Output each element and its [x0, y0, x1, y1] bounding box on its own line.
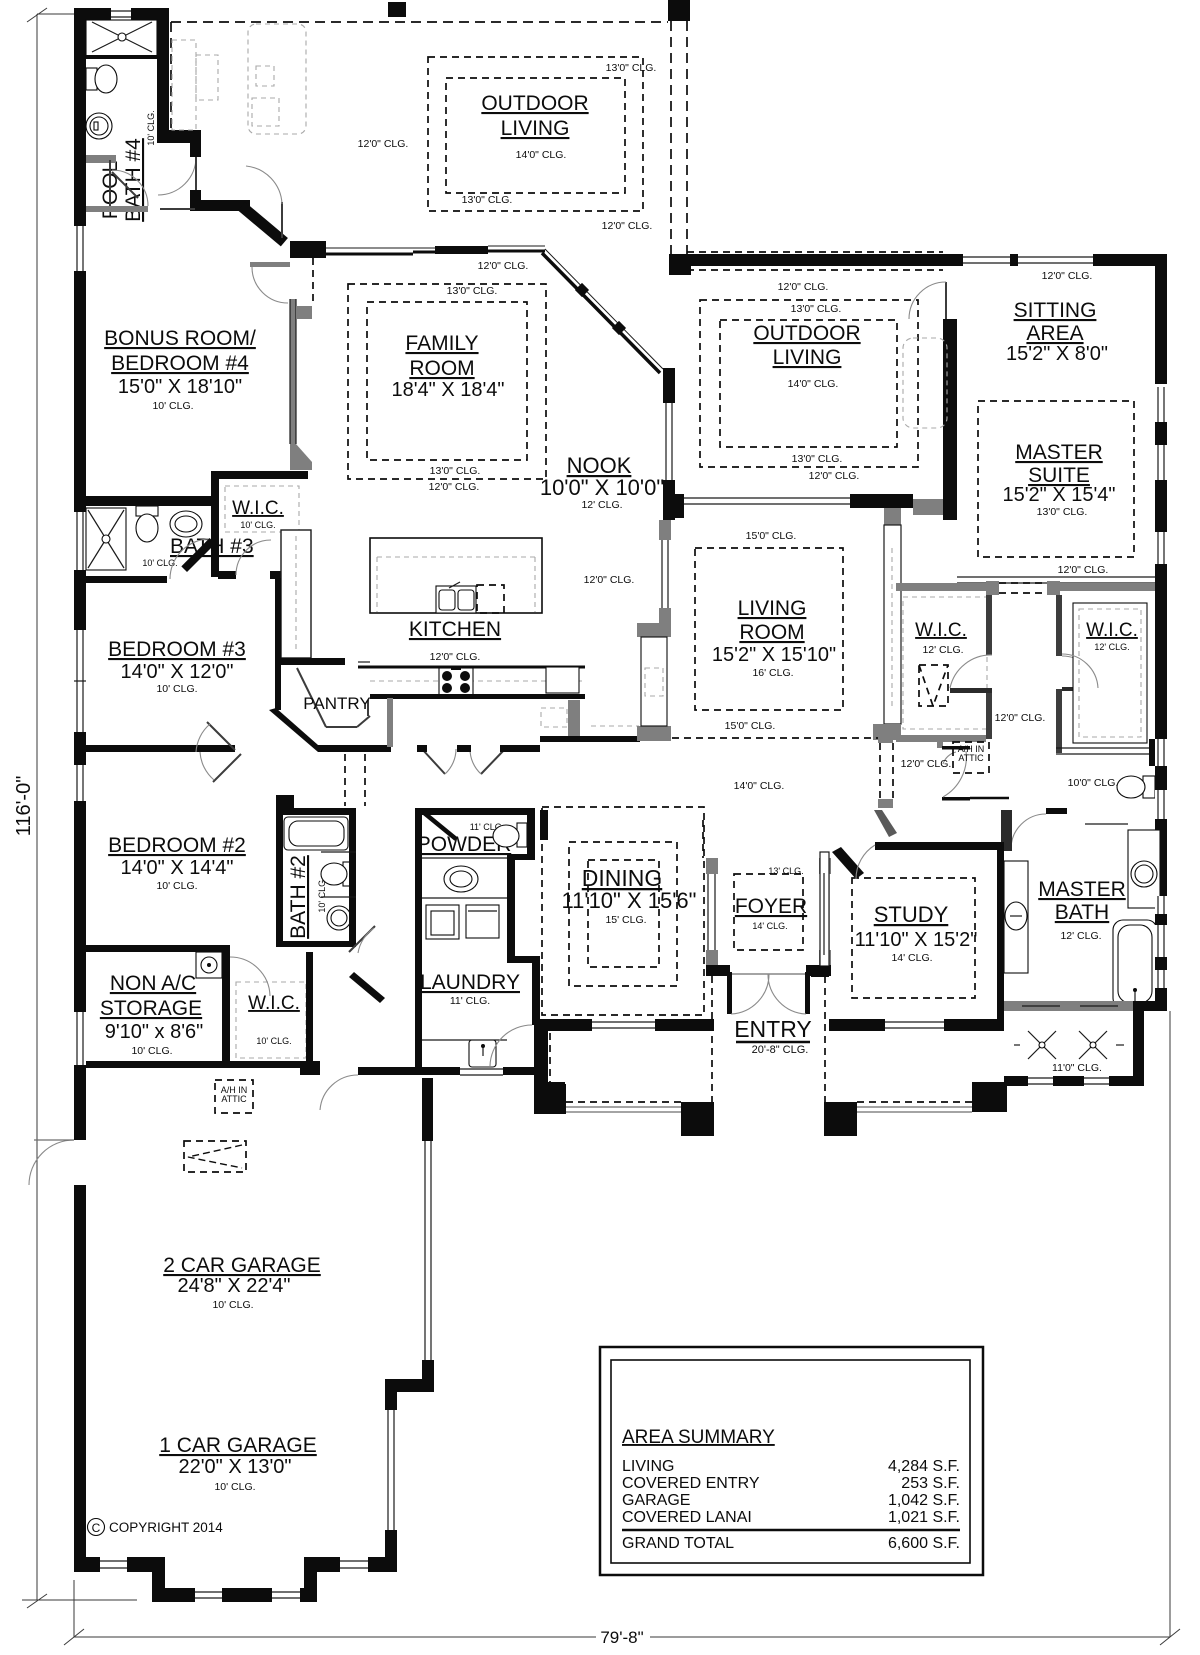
svg-text:4,284 S.F.: 4,284 S.F. — [888, 1458, 960, 1475]
svg-text:1,021 S.F.: 1,021 S.F. — [888, 1509, 960, 1526]
svg-text:11' CLG.: 11' CLG. — [450, 995, 490, 1007]
svg-text:ATTIC: ATTIC — [958, 753, 984, 763]
svg-text:SITTING: SITTING — [1014, 299, 1097, 322]
svg-text:FAMILY: FAMILY — [405, 332, 478, 355]
svg-text:W.I.C.: W.I.C. — [248, 993, 300, 1014]
svg-text:C: C — [92, 1521, 101, 1535]
svg-text:NON A/C: NON A/C — [110, 972, 196, 995]
svg-text:116'-0": 116'-0" — [13, 776, 35, 837]
svg-text:15' CLG.: 15' CLG. — [605, 914, 646, 926]
svg-text:14'0" CLG.: 14'0" CLG. — [734, 780, 785, 792]
svg-text:10' CLG.: 10' CLG. — [212, 1299, 253, 1311]
svg-text:1,042 S.F.: 1,042 S.F. — [888, 1492, 960, 1509]
svg-text:12' CLG.: 12' CLG. — [1094, 642, 1129, 652]
svg-text:12'0" CLG.: 12'0" CLG. — [809, 470, 860, 482]
svg-text:12'0" CLG.: 12'0" CLG. — [1042, 270, 1093, 282]
svg-text:STUDY: STUDY — [874, 902, 949, 927]
svg-text:COVERED ENTRY: COVERED ENTRY — [622, 1475, 760, 1492]
svg-text:ROOM: ROOM — [739, 621, 804, 644]
svg-text:9'10" x 8'6": 9'10" x 8'6" — [105, 1021, 204, 1043]
svg-text:LAUNDRY: LAUNDRY — [420, 971, 520, 994]
svg-text:KITCHEN: KITCHEN — [409, 618, 501, 641]
svg-text:13'0" CLG.: 13'0" CLG. — [1037, 506, 1088, 518]
svg-text:12'0" CLG.: 12'0" CLG. — [778, 281, 829, 293]
svg-text:W.I.C.: W.I.C. — [915, 620, 967, 641]
svg-text:14'0" CLG.: 14'0" CLG. — [788, 378, 839, 390]
svg-text:COPYRIGHT 2014: COPYRIGHT 2014 — [109, 1520, 223, 1535]
svg-text:13'0" CLG.: 13'0" CLG. — [462, 194, 513, 206]
svg-text:10' CLG.: 10' CLG. — [156, 880, 197, 892]
svg-text:W.I.C.: W.I.C. — [232, 498, 284, 519]
svg-text:10' CLG.: 10' CLG. — [152, 400, 193, 412]
svg-text:13'0" CLG.: 13'0" CLG. — [792, 453, 843, 465]
svg-text:LIVING: LIVING — [622, 1458, 674, 1475]
svg-text:W.I.C.: W.I.C. — [1086, 620, 1138, 641]
svg-text:2 CAR GARAGE: 2 CAR GARAGE — [163, 1254, 321, 1277]
svg-text:12'0" CLG.: 12'0" CLG. — [995, 712, 1046, 724]
svg-text:13'0" CLG.: 13'0" CLG. — [447, 285, 498, 297]
svg-text:BONUS ROOM/: BONUS ROOM/ — [104, 327, 256, 350]
svg-text:1 CAR GARAGE: 1 CAR GARAGE — [159, 1434, 317, 1457]
svg-text:13' CLG.: 13' CLG. — [768, 866, 803, 876]
svg-text:22'0" X 13'0": 22'0" X 13'0" — [178, 1456, 291, 1478]
svg-text:13'0" CLG.: 13'0" CLG. — [430, 465, 481, 477]
svg-text:BEDROOM #3: BEDROOM #3 — [108, 638, 246, 661]
svg-text:GRAND TOTAL: GRAND TOTAL — [622, 1535, 734, 1552]
svg-text:12' CLG.: 12' CLG. — [1060, 930, 1101, 942]
svg-text:10' CLG.: 10' CLG. — [156, 683, 197, 695]
svg-text:11'0" CLG.: 11'0" CLG. — [1052, 1062, 1102, 1074]
svg-text:12' CLG.: 12' CLG. — [922, 644, 963, 656]
svg-text:OUTDOOR: OUTDOOR — [753, 322, 860, 345]
svg-text:15'2" X 8'0": 15'2" X 8'0" — [1006, 343, 1108, 365]
svg-text:10' CLG.: 10' CLG. — [240, 520, 275, 530]
svg-text:12'0" CLG.: 12'0" CLG. — [429, 481, 480, 493]
svg-text:15'2" X 15'10": 15'2" X 15'10" — [712, 644, 836, 666]
svg-text:11'10" X 15'2": 11'10" X 15'2" — [855, 929, 978, 951]
svg-text:11'10" X 15'6": 11'10" X 15'6" — [562, 888, 697, 913]
svg-text:18'4" X 18'4": 18'4" X 18'4" — [391, 379, 504, 401]
svg-text:12'0" CLG.: 12'0" CLG. — [430, 651, 481, 663]
svg-text:BEDROOM #2: BEDROOM #2 — [108, 834, 246, 857]
svg-text:13'0" CLG.: 13'0" CLG. — [606, 62, 657, 74]
svg-text:13'0" CLG.: 13'0" CLG. — [791, 303, 842, 315]
svg-text:12'0" CLG.: 12'0" CLG. — [901, 758, 952, 770]
svg-text:ATTIC: ATTIC — [221, 1094, 247, 1104]
svg-text:79'-8": 79'-8" — [600, 1628, 643, 1647]
svg-text:10' CLG.: 10' CLG. — [214, 1481, 255, 1493]
svg-text:12'0" CLG.: 12'0" CLG. — [602, 220, 653, 232]
svg-text:14'0" X 14'4": 14'0" X 14'4" — [120, 857, 233, 879]
svg-text:12'0" CLG.: 12'0" CLG. — [1058, 564, 1109, 576]
svg-text:20'-8" CLG.: 20'-8" CLG. — [752, 1044, 809, 1056]
svg-text:ROOM: ROOM — [409, 357, 474, 380]
svg-text:BEDROOM #4: BEDROOM #4 — [111, 352, 249, 375]
svg-text:LIVING: LIVING — [501, 117, 570, 140]
svg-text:6,600 S.F.: 6,600 S.F. — [888, 1535, 960, 1552]
svg-text:14'0" CLG.: 14'0" CLG. — [516, 149, 567, 161]
svg-text:12'0" CLG.: 12'0" CLG. — [358, 138, 409, 150]
svg-text:12' CLG.: 12' CLG. — [581, 499, 622, 511]
svg-text:253 S.F.: 253 S.F. — [901, 1475, 960, 1492]
svg-text:14'0" X 12'0": 14'0" X 12'0" — [120, 661, 233, 683]
svg-text:MASTER: MASTER — [1015, 441, 1103, 464]
svg-text:BATH: BATH — [1055, 901, 1109, 924]
svg-text:15'0" CLG.: 15'0" CLG. — [746, 530, 797, 542]
svg-text:15'0" CLG.: 15'0" CLG. — [725, 720, 776, 732]
svg-text:10'0" X 10'0": 10'0" X 10'0" — [540, 475, 664, 500]
svg-text:BATH #2: BATH #2 — [287, 855, 310, 939]
svg-text:PANTRY: PANTRY — [303, 694, 370, 713]
svg-text:MASTER: MASTER — [1038, 878, 1126, 901]
svg-text:12'0" CLG.: 12'0" CLG. — [478, 260, 529, 272]
svg-text:10' CLG.: 10' CLG. — [131, 1045, 172, 1057]
svg-text:FOYER: FOYER — [735, 895, 807, 918]
svg-text:AREA: AREA — [1026, 322, 1083, 345]
svg-text:15'0" X 18'10": 15'0" X 18'10" — [118, 376, 242, 398]
svg-text:ENTRY: ENTRY — [734, 1016, 812, 1042]
svg-text:10' CLG.: 10' CLG. — [256, 1036, 291, 1046]
svg-text:LIVING: LIVING — [738, 597, 807, 620]
svg-text:10' CLG.: 10' CLG. — [146, 110, 156, 145]
svg-text:COVERED LANAI: COVERED LANAI — [622, 1509, 752, 1526]
svg-text:14' CLG.: 14' CLG. — [752, 921, 787, 931]
svg-text:16' CLG.: 16' CLG. — [752, 667, 793, 679]
svg-text:AREA SUMMARY: AREA SUMMARY — [622, 1427, 775, 1448]
svg-text:LIVING: LIVING — [773, 346, 842, 369]
svg-text:15'2" X 15'4": 15'2" X 15'4" — [1002, 484, 1115, 506]
svg-text:STORAGE: STORAGE — [100, 997, 202, 1020]
svg-text:GARAGE: GARAGE — [622, 1492, 690, 1509]
svg-text:12'0" CLG.: 12'0" CLG. — [584, 574, 635, 586]
svg-text:24'8" X 22'4": 24'8" X 22'4" — [177, 1275, 290, 1297]
svg-text:OUTDOOR: OUTDOOR — [481, 92, 588, 115]
svg-text:14' CLG.: 14' CLG. — [891, 952, 932, 964]
svg-text:10'0" CLG.: 10'0" CLG. — [1068, 777, 1119, 789]
